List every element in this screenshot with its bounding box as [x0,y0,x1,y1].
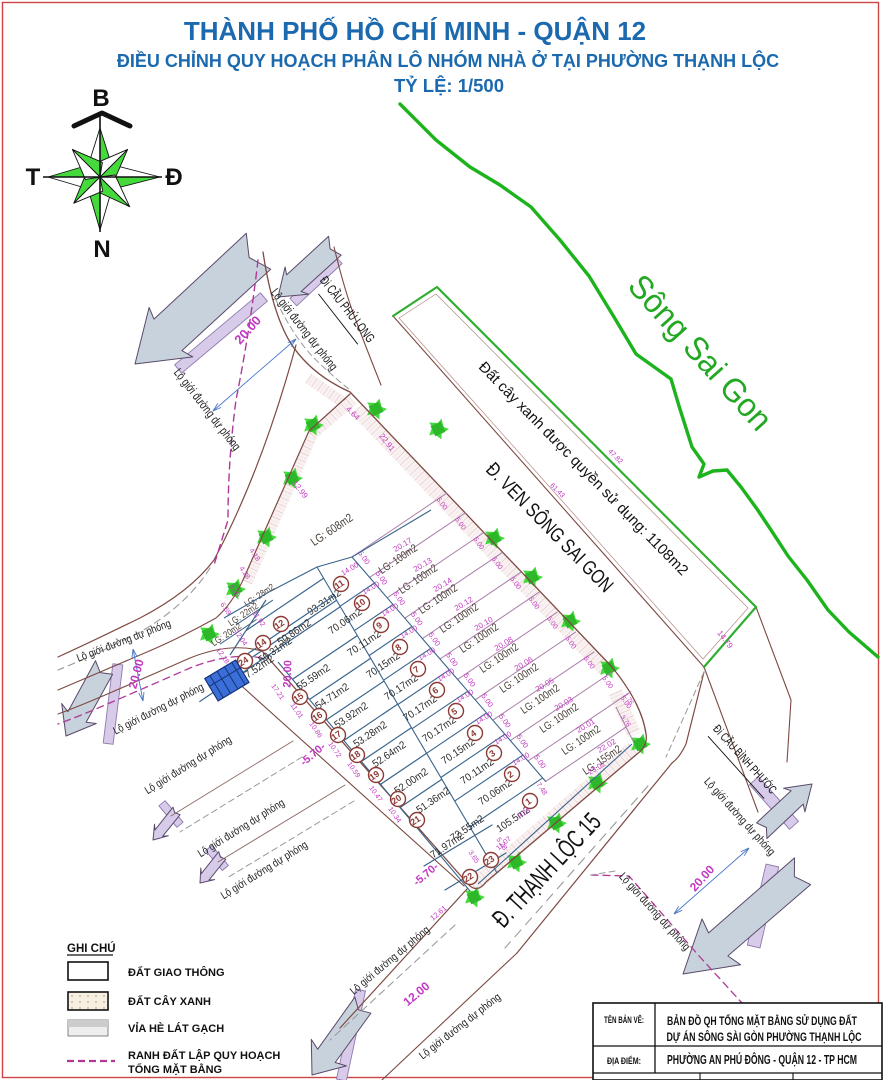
svg-text:TỶ LỆ: 1/500: TỶ LỆ: 1/500 [394,75,504,96]
svg-text:RANH ĐẤT LẬP QUY HOẠCH: RANH ĐẤT LẬP QUY HOẠCH [128,1049,280,1062]
svg-text:ĐỊA ĐIỂM:: ĐỊA ĐIỂM: [607,1055,641,1066]
svg-text:ĐẤT CÂY XANH: ĐẤT CÂY XANH [128,995,211,1008]
svg-text:VỈA HÈ LÁT GẠCH: VỈA HÈ LÁT GẠCH [128,1022,224,1035]
svg-text:N: N [93,236,110,263]
svg-text:BẢN ĐỒ QH TỔNG MẶT BẰNG SỬ DỤN: BẢN ĐỒ QH TỔNG MẶT BẰNG SỬ DỤNG ĐẤT [667,1013,857,1028]
svg-text:Đ: Đ [165,164,182,191]
svg-text:THÀNH PHỐ HỒ CHÍ MINH - QUẬN 1: THÀNH PHỐ HỒ CHÍ MINH - QUẬN 12 [184,16,646,46]
svg-text:PHƯỜNG AN PHÚ ĐÔNG - QUẬN 12 -: PHƯỜNG AN PHÚ ĐÔNG - QUẬN 12 - TP HCM [667,1052,857,1067]
svg-text:ĐẤT GIAO THÔNG: ĐẤT GIAO THÔNG [128,966,225,979]
svg-text:T: T [26,164,41,191]
svg-text:GHI CHÚ: GHI CHÚ [67,942,116,955]
svg-text:20.00: 20.00 [282,660,295,688]
svg-text:DỰ ÁN SÔNG SÀI GÒN PHƯỜNG THẠN: DỰ ÁN SÔNG SÀI GÒN PHƯỜNG THẠNH LỘC [667,1029,862,1044]
svg-text:TÊN BẢN VẼ:: TÊN BẢN VẼ: [604,1014,644,1025]
svg-text:TỔNG MẶT BẰNG: TỔNG MẶT BẰNG [128,1063,222,1076]
svg-text:B: B [92,85,109,112]
svg-text:ĐIỀU CHỈNH QUY HOẠCH PHÂN LÔ N: ĐIỀU CHỈNH QUY HOẠCH PHÂN LÔ NHÓM NHÀ Ở … [117,50,779,71]
